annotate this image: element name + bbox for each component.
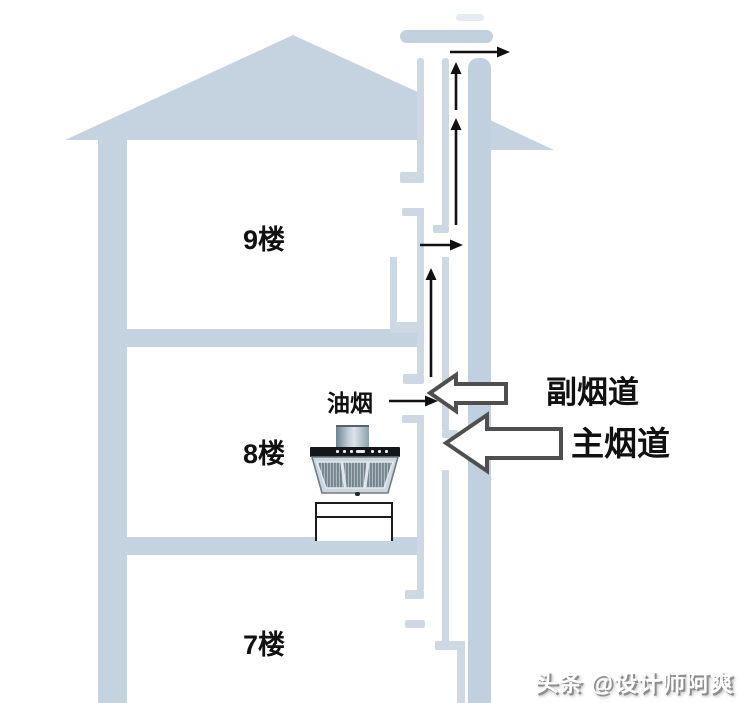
floor-label-9: 9楼 — [204, 226, 324, 256]
exit-top-arrow — [450, 47, 510, 58]
secondary-duct-callout-arrow — [430, 375, 506, 411]
watermark: 头条 @设计师阿爽 — [535, 664, 734, 698]
secondary-duct-label: 副烟道 — [546, 376, 639, 410]
cross-into-main-duct-arrow — [420, 240, 463, 251]
main-duct-rise-arrow-upper — [451, 62, 462, 110]
main-duct-callout-arrow — [446, 415, 561, 471]
main-duct-rise-arrow-lower — [451, 118, 462, 225]
main-duct-label: 主烟道 — [571, 426, 670, 462]
flow-arrows-layer — [0, 0, 750, 703]
secondary-duct-rise-arrow — [426, 268, 437, 377]
floor-label-8: 8楼 — [204, 440, 324, 470]
fume-label: 油烟 — [300, 391, 400, 416]
floor-label-7: 7楼 — [204, 631, 324, 661]
building-smoke-duct-diagram: 9楼 8楼 7楼 油烟 副烟道 主烟道 头条 @设计师阿爽 — [0, 0, 750, 703]
